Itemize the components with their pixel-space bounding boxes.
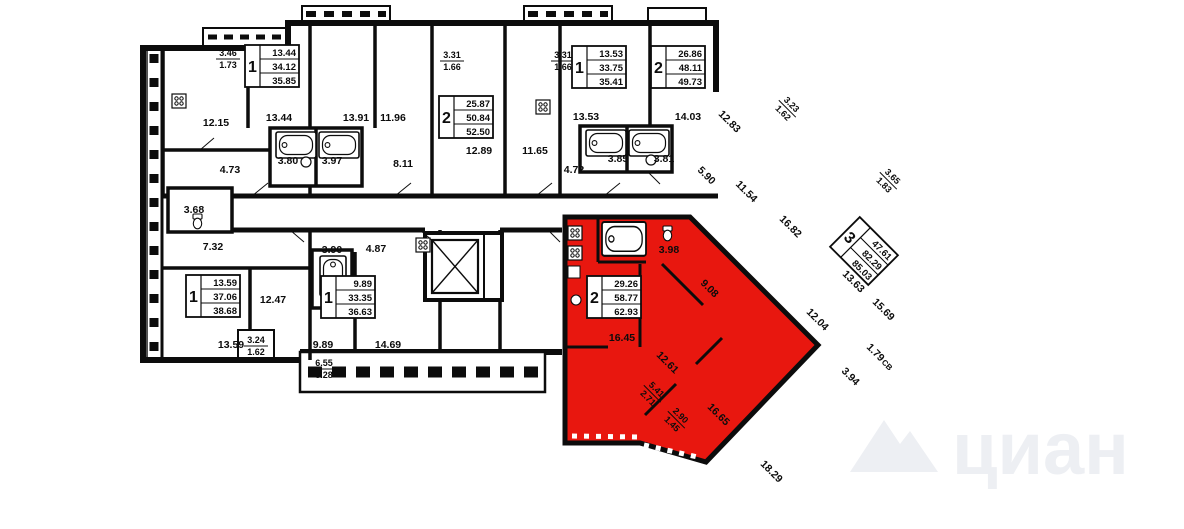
room-area-label: 3.98 [659,244,680,256]
room-area-label: 12.04 [804,306,831,333]
room-area-label: 12.47 [260,294,286,306]
svg-text:18.29: 18.29 [758,458,785,485]
svg-text:12.47: 12.47 [260,294,286,306]
apartment-area: 50.84 [466,113,490,124]
svg-text:13.59: 13.59 [218,339,244,351]
svg-text:11.96: 11.96 [380,112,406,124]
apartment-info-box: 19.8933.3536.63 [321,276,375,318]
svg-text:13.44: 13.44 [266,112,292,124]
room-area-label: 12.83 [716,108,743,135]
apartment-info-box: 226.8648.1149.73 [651,46,705,88]
svg-text:3.98: 3.98 [659,244,680,256]
room-area-label: 13.91 [343,112,369,124]
apartment-area: 48.11 [679,63,703,74]
living-area: 26.86 [678,49,702,60]
total-area: 35.85 [272,76,296,87]
highlighted-apartment[interactable] [565,217,818,462]
rooms-count: 1 [575,60,584,77]
building-floor-plan: циан 3.461.7312.1513.4413.9111.963.803.9… [0,0,1184,529]
balcony-area-label: 6.553.28 [312,358,336,380]
counter-icon [568,266,580,278]
apartment-info-box: 113.5937.0638.68 [186,275,240,317]
svg-text:9.89: 9.89 [313,339,334,351]
svg-text:1.66: 1.66 [443,62,461,72]
apartment-area: 33.75 [599,63,623,74]
svg-text:6.55: 6.55 [315,358,333,368]
room-area-label: 3.80 [278,155,299,167]
room-area-label: 9.89 [313,339,334,351]
apartment-area: 58.77 [614,293,638,304]
svg-text:3.24: 3.24 [247,335,265,345]
stove-icon [416,238,430,252]
toilet-icon [663,226,672,241]
svg-text:13.53: 13.53 [573,111,599,123]
living-area: 13.44 [272,48,296,59]
apartment-info-box-highlighted: 229.2658.7762.93 [587,276,641,318]
total-area: 49.73 [678,77,702,88]
svg-text:16.82: 16.82 [777,213,804,240]
svg-text:14.03: 14.03 [675,111,701,123]
room-area-label: 3.81 [654,153,675,165]
svg-text:3.97: 3.97 [322,155,343,167]
cian-watermark: циан [850,407,1129,490]
svg-text:16.45: 16.45 [609,332,635,344]
rooms-count: 1 [189,289,198,306]
svg-text:1.62: 1.62 [247,347,265,357]
svg-text:12.83: 12.83 [716,108,743,135]
svg-text:1.66: 1.66 [554,62,572,72]
svg-text:3.68: 3.68 [184,204,205,216]
living-area: 13.59 [213,278,237,289]
room-area-label: 8.11 [393,158,413,170]
living-area: 13.53 [599,49,623,60]
svg-text:3.31: 3.31 [443,50,461,60]
elevator-core [425,233,502,300]
room-area-label: 11.65 [522,145,548,157]
svg-text:14.69: 14.69 [375,339,401,351]
sink-icon [301,157,311,167]
svg-text:12.15: 12.15 [203,117,229,129]
bottom-balcony [300,352,545,392]
stove-icon [172,94,186,108]
svg-text:4.87: 4.87 [366,243,387,255]
bathtub-icon [602,222,646,256]
balcony-area-label: 3.651.83 [872,164,905,197]
room-area-label: 15.69 [870,296,897,323]
svg-text:15.69: 15.69 [870,296,897,323]
room-area-label: 11.96 [380,112,406,124]
toilet-icon [193,214,202,229]
room-area-label: 12.15 [203,117,229,129]
room-area-label: 3.85 [608,153,629,165]
room-area-label: 4.73 [220,164,241,176]
apartment-info-box: 113.4434.1235.85 [245,45,299,87]
room-area-label: 13.59 [218,339,244,351]
living-area: 29.26 [614,279,638,290]
rooms-count: 2 [590,290,599,307]
balcony-area-label: 3.231.62 [771,92,804,125]
stove-icon [568,226,582,240]
total-area: 35.41 [599,77,623,88]
svg-text:11.65: 11.65 [522,145,548,157]
sink-icon [571,295,581,305]
room-area-label: 13.44 [266,112,292,124]
rooms-count: 1 [324,290,333,307]
room-area-label: 12.89 [466,145,492,157]
total-area: 38.68 [213,306,237,317]
living-area: 25.87 [466,99,490,110]
balcony-area-label: 3.241.62 [244,335,268,357]
room-area-label: 14.69 [375,339,401,351]
svg-text:11.54: 11.54 [733,178,760,205]
svg-text:8.11: 8.11 [393,158,413,170]
svg-text:3.90: 3.90 [322,244,343,256]
svg-text:3.80: 3.80 [278,155,299,167]
svg-text:12.89: 12.89 [466,145,492,157]
balcony-area-label: 3.311.66 [440,50,464,72]
room-area-label: 4.87 [366,243,387,255]
svg-text:3.85: 3.85 [608,153,629,165]
room-area-label: 3.90 [322,244,343,256]
room-area-label: 11.54 [733,178,760,205]
room-area-label: 7.32 [203,241,224,253]
svg-text:7.32: 7.32 [203,241,224,253]
room-area-label: 4.72 [564,164,585,176]
room-area-label: 14.03 [675,111,701,123]
apartment-area: 34.12 [272,62,296,73]
total-area: 62.93 [614,307,638,318]
rooms-count: 2 [442,110,451,127]
apartment-info-box: 225.8750.8452.50 [439,96,493,138]
apartment-info-box: 347.6182.2985.03 [830,217,898,285]
apartment-info-box: 113.5333.7535.41 [572,46,626,88]
apartment-area: 37.06 [213,292,237,303]
svg-text:4.72: 4.72 [564,164,585,176]
stove-icon [536,100,550,114]
room-area-label: 18.29 [758,458,785,485]
floor-plan-screenshot: циан 3.461.7312.1513.4413.9111.963.803.9… [0,0,1184,529]
room-area-label: 3.68 [184,204,205,216]
room-area-label: 13.53 [573,111,599,123]
apartment-area: 33.35 [348,293,372,304]
room-area-label: 3.97 [322,155,343,167]
room-area-label: 16.45 [609,332,635,344]
rooms-count: 1 [248,59,257,76]
svg-text:12.04: 12.04 [804,306,831,333]
svg-text:1.73: 1.73 [219,60,237,70]
total-area: 36.63 [348,307,372,318]
rooms-count: 2 [654,60,663,77]
svg-text:3.31: 3.31 [554,50,572,60]
svg-text:4.73: 4.73 [220,164,241,176]
stove-icon [568,246,582,260]
balcony-area-label: 3.461.73 [216,48,240,70]
total-area: 52.50 [466,127,490,138]
watermark-text: циан [952,407,1129,490]
svg-text:3.81: 3.81 [654,153,675,165]
svg-text:3.46: 3.46 [219,48,237,58]
svg-text:3.94: 3.94 [839,365,862,388]
room-area-label: 16.82 [777,213,804,240]
room-area-label: 3.94 [839,365,862,388]
svg-text:3.28: 3.28 [315,370,333,380]
svg-text:13.91: 13.91 [343,112,369,124]
living-area: 9.89 [354,279,373,290]
cian-logo-icon [850,420,938,472]
